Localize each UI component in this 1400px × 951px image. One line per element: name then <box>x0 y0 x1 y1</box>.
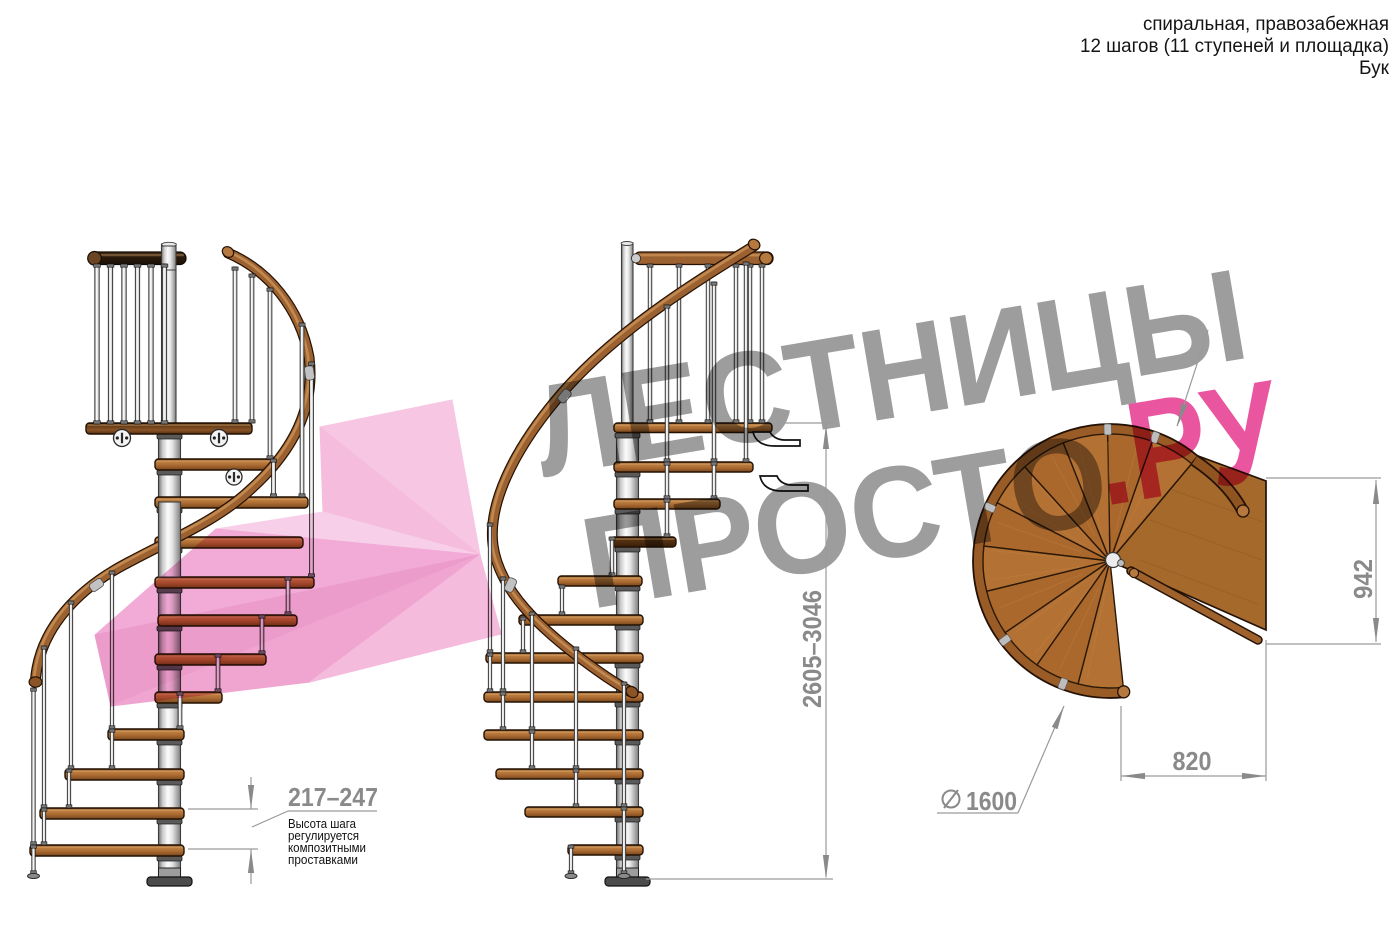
svg-text:спиральная, правозабежная: спиральная, правозабежная <box>1143 13 1389 35</box>
svg-text:12 шагов (11 ступеней и площад: 12 шагов (11 ступеней и площадка) <box>1080 35 1389 57</box>
svg-text:942: 942 <box>1348 559 1378 599</box>
svg-text:217–247: 217–247 <box>288 782 378 812</box>
svg-text:Бук: Бук <box>1359 57 1389 79</box>
svg-text:820: 820 <box>1173 746 1212 776</box>
svg-text:проставками: проставками <box>288 852 358 867</box>
svg-text:2605–3046: 2605–3046 <box>797 590 827 708</box>
svg-text:.РУ: .РУ <box>1083 350 1293 536</box>
svg-text:1600: 1600 <box>966 786 1017 816</box>
